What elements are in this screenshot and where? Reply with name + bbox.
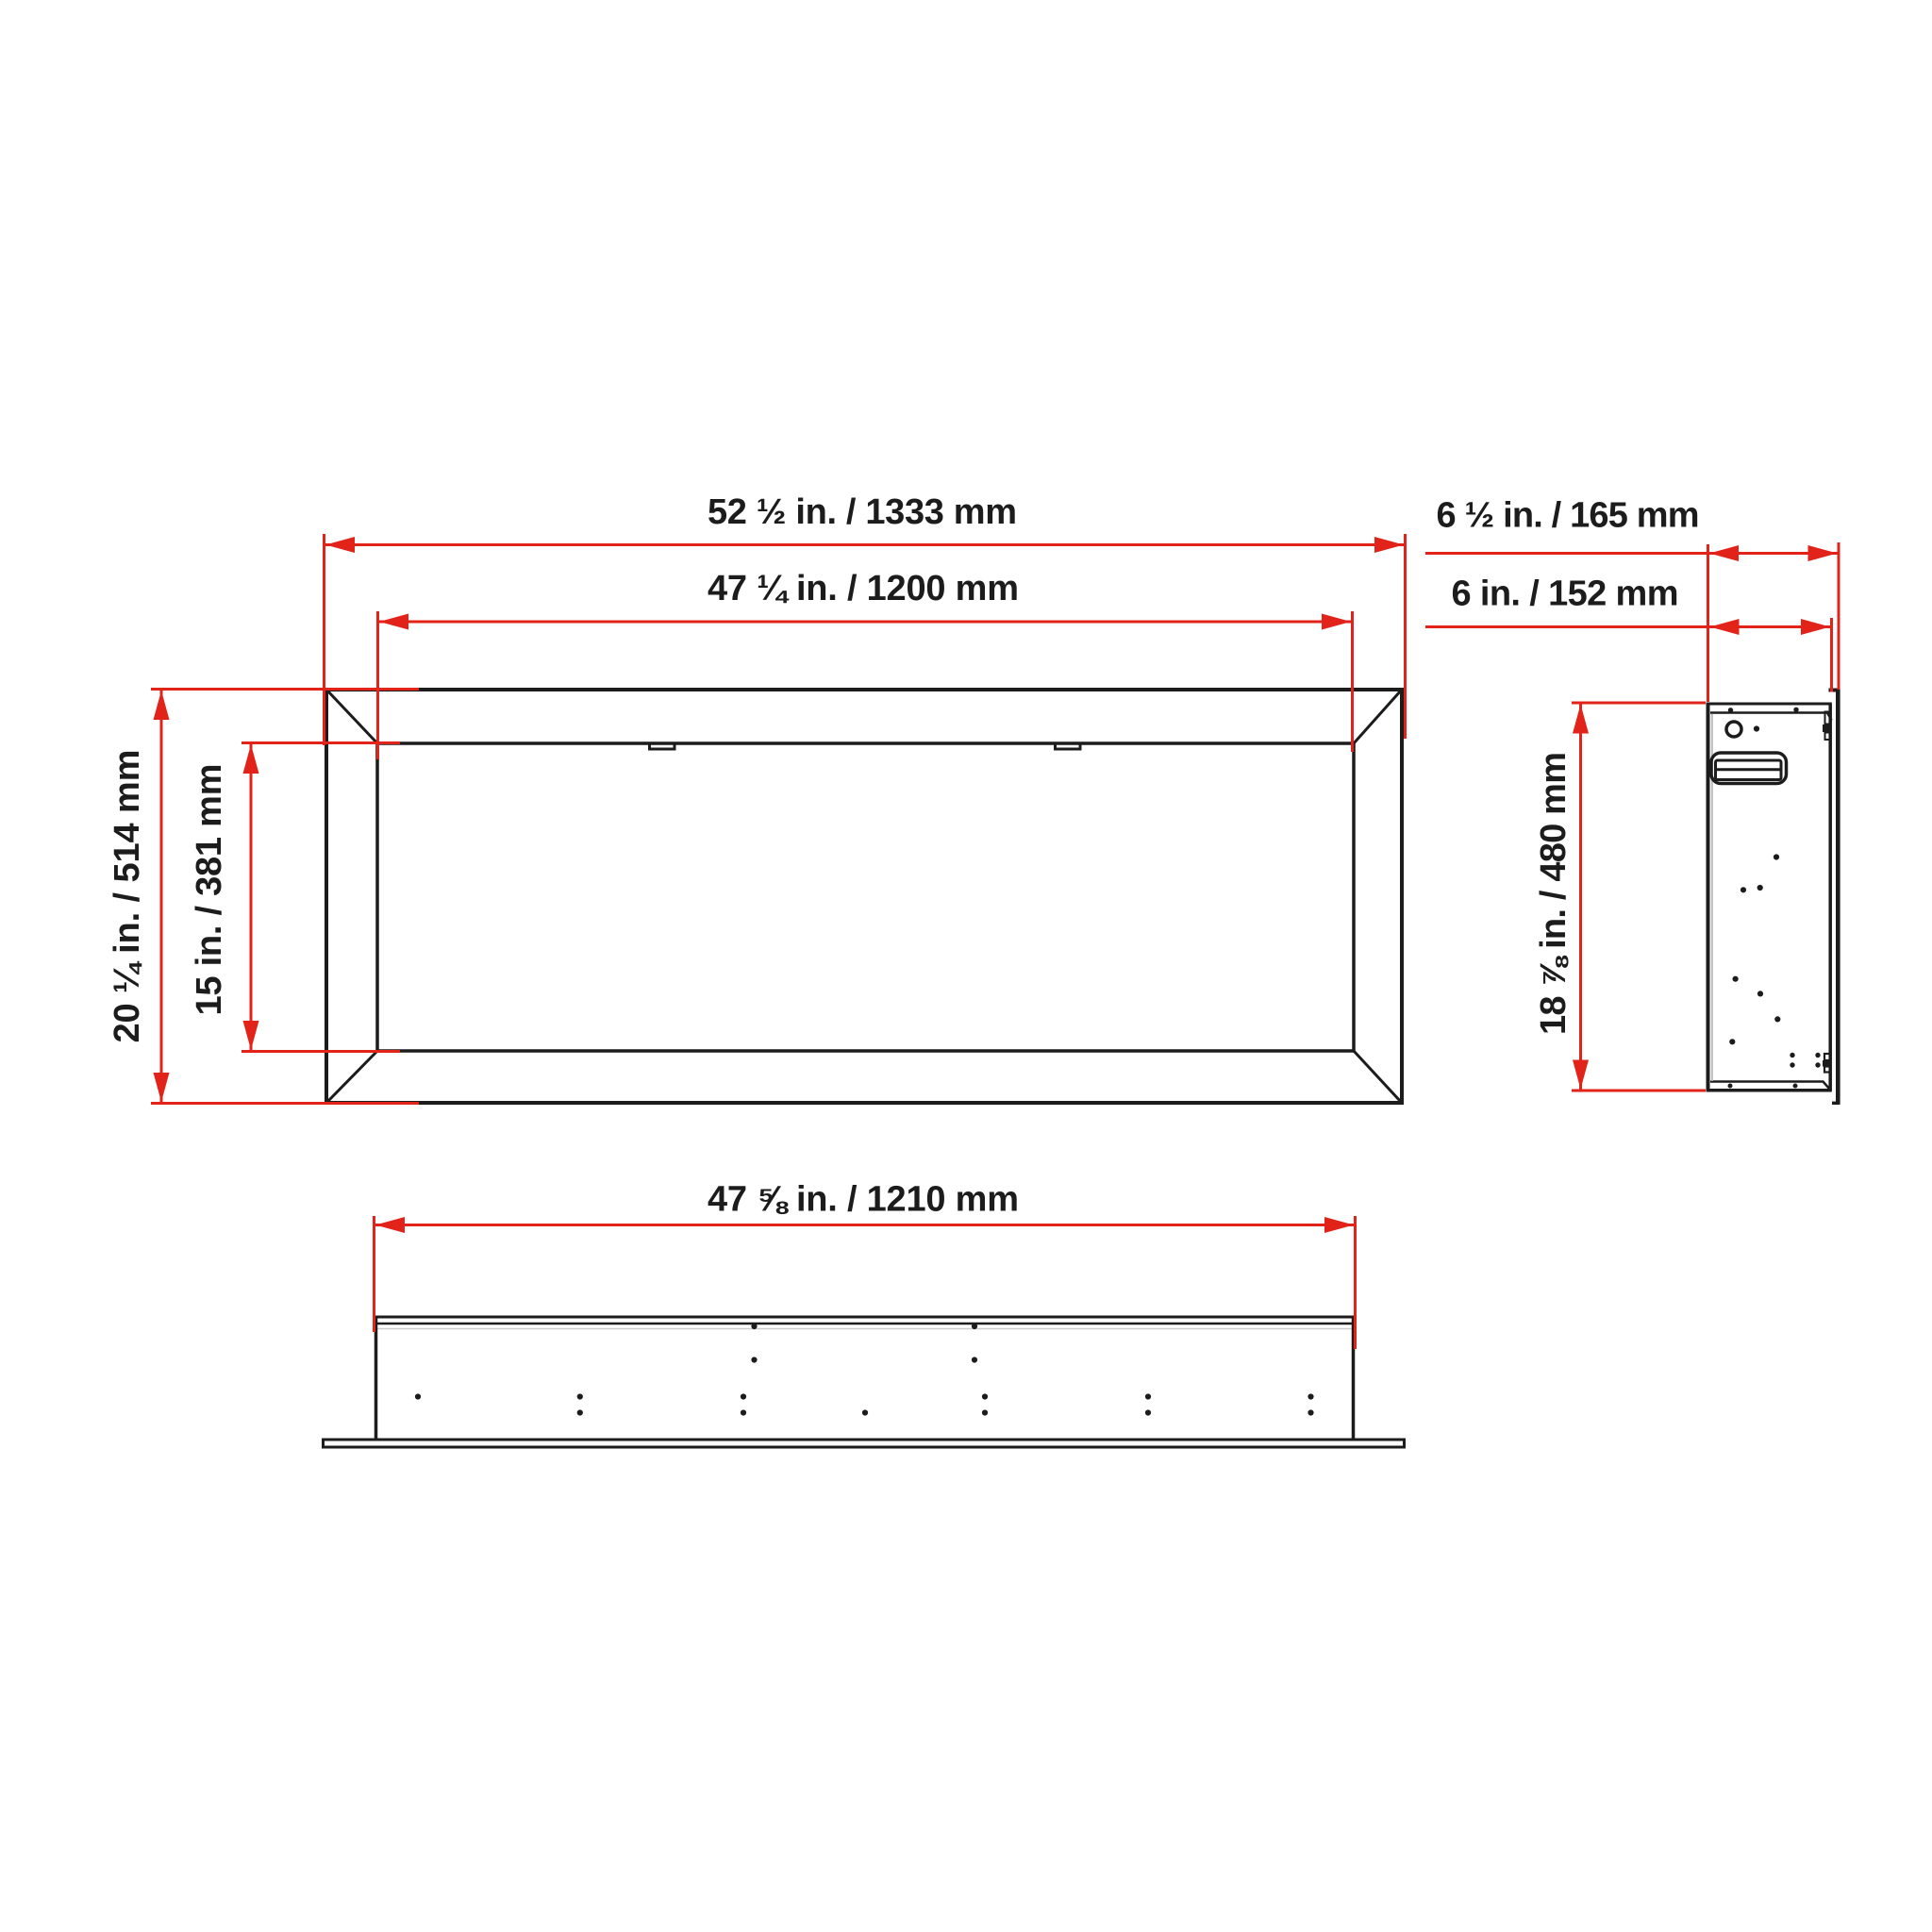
svg-text:47 ¼ in. / 1200 mm: 47 ¼ in. / 1200 mm — [708, 569, 1019, 608]
svg-text:20 ¼ in. / 514 mm: 20 ¼ in. / 514 mm — [108, 750, 147, 1043]
svg-text:18 ⅞ in. / 480 mm: 18 ⅞ in. / 480 mm — [1534, 752, 1574, 1035]
svg-text:6 in. / 152 mm: 6 in. / 152 mm — [1452, 575, 1679, 614]
svg-text:6 ½ in. / 165 mm: 6 ½ in. / 165 mm — [1437, 496, 1700, 536]
svg-text:15 in. / 381 mm: 15 in. / 381 mm — [190, 764, 229, 1016]
svg-text:52 ½ in. / 1333 mm: 52 ½ in. / 1333 mm — [708, 492, 1017, 532]
svg-text:47 ⅝ in. / 1210 mm: 47 ⅝ in. / 1210 mm — [708, 1180, 1019, 1220]
